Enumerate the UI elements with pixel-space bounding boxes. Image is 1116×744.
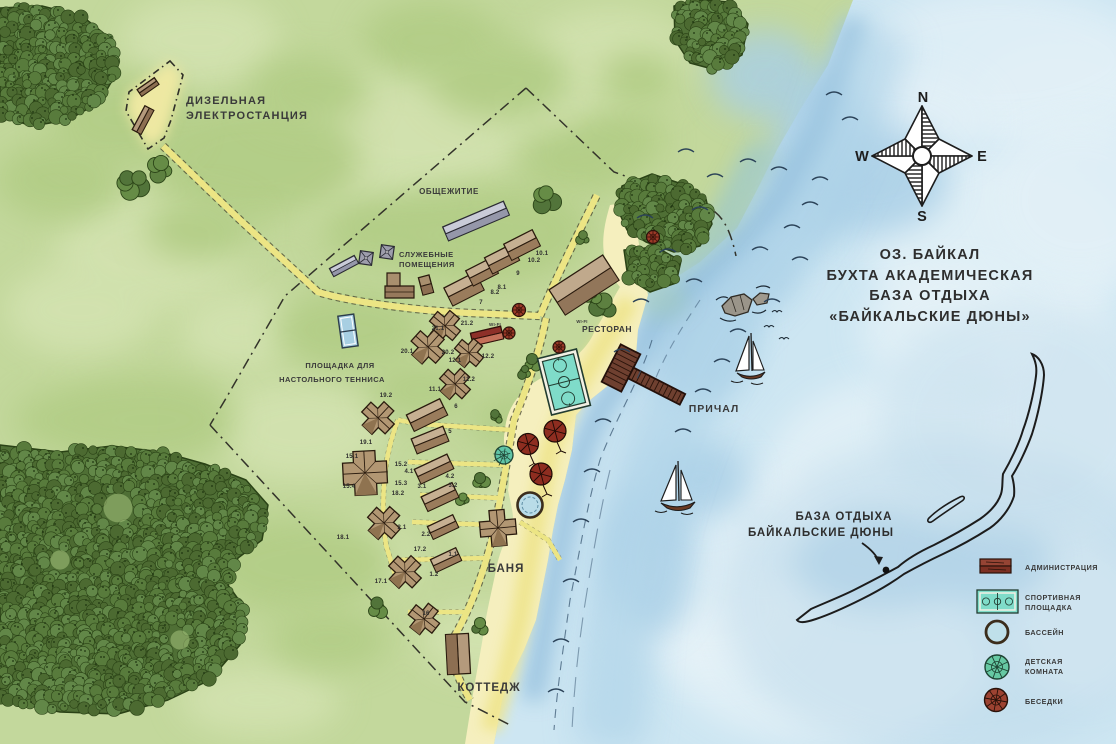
svg-text:1.1: 1.1 [449,552,458,558]
svg-text:W: W [855,149,869,165]
svg-text:1.2: 1.2 [430,572,439,578]
svg-text:20.2: 20.2 [442,350,455,356]
svg-text:21.2: 21.2 [461,321,474,327]
svg-text:ПЛОЩАДКА: ПЛОЩАДКА [1025,603,1072,612]
svg-text:N: N [918,90,928,106]
svg-text:БАЙКАЛЬСКИЕ ДЮНЫ: БАЙКАЛЬСКИЕ ДЮНЫ [748,526,894,539]
svg-text:12.1: 12.1 [449,358,462,364]
svg-text:СЛУЖЕБНЫЕ: СЛУЖЕБНЫЕ [399,250,454,259]
svg-text:19.2: 19.2 [380,393,393,399]
svg-text:18.2: 18.2 [392,491,405,497]
svg-text:БАЗА ОТДЫХА: БАЗА ОТДЫХА [869,288,991,304]
svg-text:17.1: 17.1 [375,579,388,585]
svg-text:РЕСТОРАН: РЕСТОРАН [582,324,632,334]
svg-text:5: 5 [448,429,452,435]
svg-text:БУХТА АКАДЕМИЧЕСКАЯ: БУХТА АКАДЕМИЧЕСКАЯ [827,268,1034,284]
svg-text:ОБЩЕЖИТИЕ: ОБЩЕЖИТИЕ [419,187,479,196]
svg-text:10.2: 10.2 [528,258,541,264]
svg-text:18.1: 18.1 [337,535,350,541]
svg-text:ПРИЧАЛ: ПРИЧАЛ [689,403,740,415]
svg-text:ПОМЕЩЕНИЯ: ПОМЕЩЕНИЯ [399,260,455,269]
svg-text:ОЗ. БАЙКАЛ: ОЗ. БАЙКАЛ [880,245,981,263]
svg-text:6: 6 [454,404,458,410]
svg-text:19.1: 19.1 [360,440,373,446]
svg-text:10.1: 10.1 [536,251,549,257]
svg-text:WI-FI: WI-FI [489,322,501,327]
svg-text:E: E [977,149,987,165]
svg-text:17.2: 17.2 [414,547,427,553]
svg-text:БАЗА ОТДЫХА: БАЗА ОТДЫХА [796,511,893,523]
svg-text:S: S [917,209,927,225]
svg-text:11.1: 11.1 [429,387,442,393]
svg-text:9: 9 [516,271,520,277]
svg-text:12.2: 12.2 [482,354,495,360]
svg-text:БАНЯ: БАНЯ [488,563,525,575]
svg-text:2.2: 2.2 [422,532,431,538]
svg-text:ДЕТСКАЯ: ДЕТСКАЯ [1025,657,1063,666]
svg-text:БАССЕЙН: БАССЕЙН [1025,628,1064,637]
svg-text:4.2: 4.2 [446,474,455,480]
svg-text:АДМИНИСТРАЦИЯ: АДМИНИСТРАЦИЯ [1025,563,1098,572]
svg-text:15.3: 15.3 [395,481,408,487]
svg-text:16: 16 [422,611,430,617]
svg-text:ДИЗЕЛЬНАЯ: ДИЗЕЛЬНАЯ [186,95,266,107]
svg-text:НАСТОЛЬНОГО ТЕННИСА: НАСТОЛЬНОГО ТЕННИСА [279,375,385,384]
svg-text:БЕСЕДКИ: БЕСЕДКИ [1025,697,1063,706]
svg-text:4.1: 4.1 [405,469,414,475]
svg-text:15.4: 15.4 [343,484,356,490]
svg-text:ЭЛЕКТРОСТАНЦИЯ: ЭЛЕКТРОСТАНЦИЯ [186,110,308,122]
svg-text:КОМНАТА: КОМНАТА [1025,667,1064,676]
svg-text:15.2: 15.2 [395,462,408,468]
svg-text:7: 7 [479,300,483,306]
svg-text:8.2: 8.2 [491,290,500,296]
svg-text:КОТТЕДЖ: КОТТЕДЖ [457,682,520,694]
svg-text:3.2: 3.2 [449,483,458,489]
svg-text:11.2: 11.2 [463,377,476,383]
svg-text:3.1: 3.1 [418,484,427,490]
svg-text:21.1: 21.1 [432,326,445,332]
svg-text:20.1: 20.1 [401,349,414,355]
svg-text:«БАЙКАЛЬСКИЕ ДЮНЫ»: «БАЙКАЛЬСКИЕ ДЮНЫ» [829,307,1031,325]
svg-text:ПЛОЩАДКА ДЛЯ: ПЛОЩАДКА ДЛЯ [305,361,374,370]
svg-text:2.1: 2.1 [398,525,407,531]
svg-text:15.1: 15.1 [346,454,359,460]
svg-text:СПОРТИВНАЯ: СПОРТИВНАЯ [1025,593,1081,602]
